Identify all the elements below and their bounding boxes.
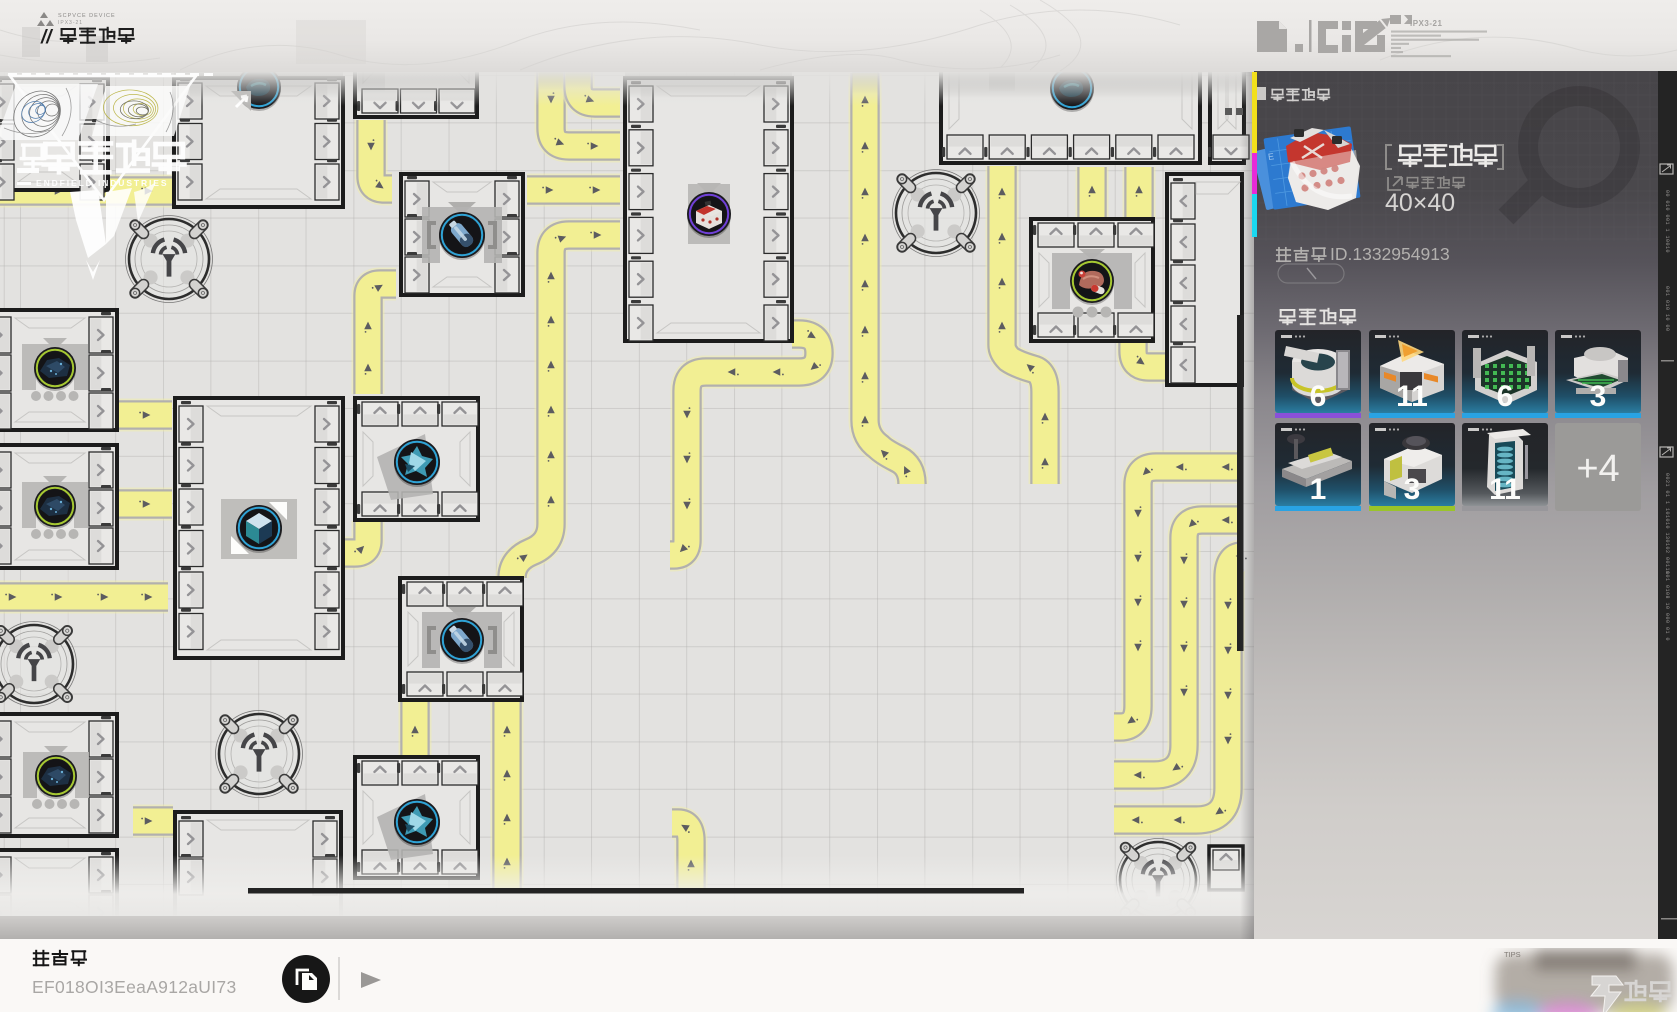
svg-text:40×40: 40×40 [1385,189,1455,217]
svg-text:00 010 001 1 10010: 00 010 001 1 10010 [1664,190,1670,253]
svg-text:1: 1 [1310,473,1327,506]
svg-text:6: 6 [1310,380,1327,413]
svg-text:3: 3 [1590,380,1607,413]
svg-text:SCPVCE DEVICE: SCPVCE DEVICE [58,13,116,19]
svg-text:11: 11 [1489,473,1521,506]
svg-text:3: 3 [1404,473,1421,506]
svg-text://: // [40,27,53,48]
svg-text:IPX3-21: IPX3-21 [58,20,83,26]
svg-text:IPX3-21: IPX3-21 [1410,19,1442,28]
svg-text:001 010 10 00: 001 010 10 00 [1664,286,1670,332]
svg-text:TIPS: TIPS [1504,950,1521,959]
svg-text:+4: +4 [1576,448,1619,490]
svg-text:101 0108 10 000 01 0: 101 0108 10 000 01 0 [1664,571,1670,641]
svg-text:0021 01 1 101010 130102 00110: 0021 01 1 101010 130102 00110 [1664,473,1670,575]
svg-text:6: 6 [1497,380,1514,413]
svg-text:11: 11 [1396,380,1428,413]
svg-text:ID.1332954913: ID.1332954913 [1330,244,1450,264]
